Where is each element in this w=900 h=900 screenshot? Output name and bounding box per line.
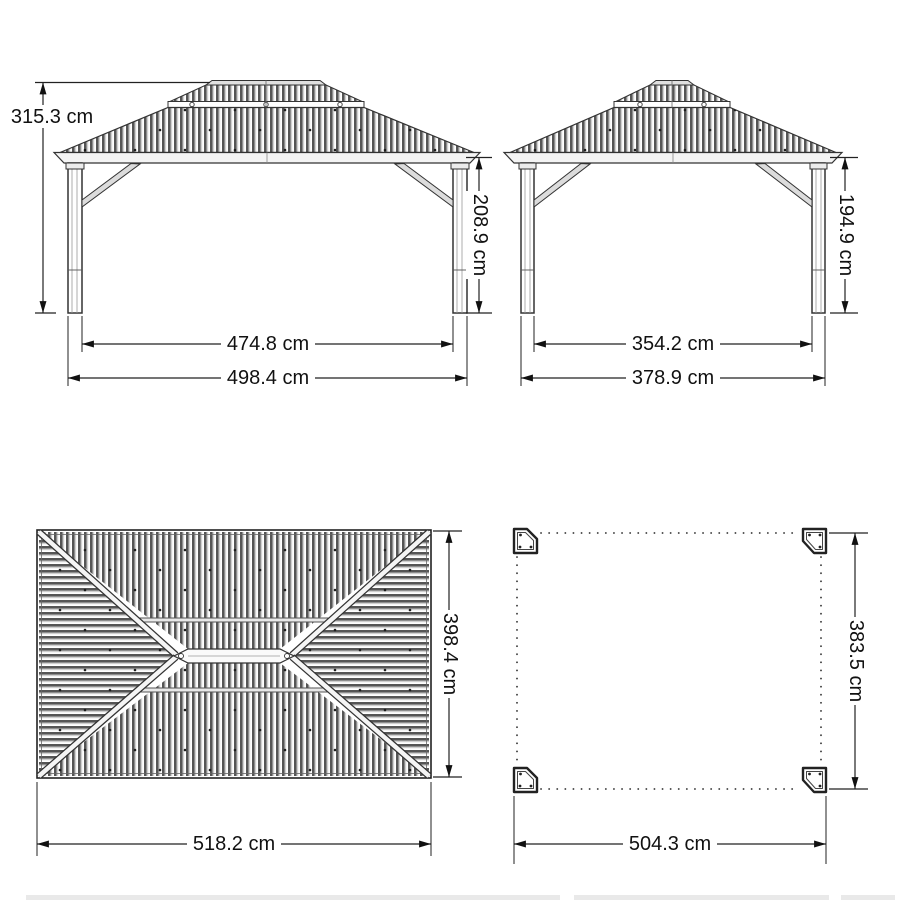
dim-label-side-inner-depth: 354.2 cm — [632, 333, 714, 355]
base-plan-view: 383.5 cm 504.3 cm — [514, 529, 868, 864]
dim-label-base-depth: 383.5 cm — [845, 620, 867, 702]
dim-base-depth: 383.5 cm — [829, 533, 868, 789]
ridge-end-cap — [285, 654, 290, 659]
dim-front-inner-width: 474.8 cm — [82, 316, 453, 355]
base-post-top-left — [514, 529, 537, 553]
side-left-post — [519, 163, 536, 313]
dim-label-front-outer-width: 498.4 cm — [227, 367, 309, 389]
dim-label-overall-height: 315.3 cm — [11, 106, 93, 128]
base-post-bottom-left — [514, 768, 537, 792]
dim-label-side-outer-depth: 378.9 cm — [632, 367, 714, 389]
vent-connector — [190, 102, 194, 106]
bottom-edge-strip — [26, 895, 895, 900]
vent-connector — [638, 102, 642, 106]
front-right-brace — [395, 164, 453, 208]
dim-label-side-clearance: 194.9 cm — [835, 194, 857, 276]
dim-side-inner-depth: 354.2 cm — [534, 316, 812, 355]
dim-base-width: 504.3 cm — [514, 796, 826, 864]
front-left-post — [66, 163, 84, 313]
side-left-brace — [534, 164, 590, 208]
dim-label-base-width: 504.3 cm — [629, 833, 711, 855]
dim-label-front-inner-width: 474.8 cm — [227, 333, 309, 355]
dim-roof-width: 518.2 cm — [37, 782, 431, 856]
dim-roof-depth: 398.4 cm — [433, 531, 462, 777]
roof-plan-view: 398.4 cm 518.2 cm — [37, 530, 462, 856]
base-post-top-right — [803, 529, 826, 553]
front-roof-rivets — [60, 108, 474, 153]
vent-connector — [338, 102, 342, 106]
dim-label-roof-width: 518.2 cm — [193, 833, 275, 855]
dim-side-clearance-height: 194.9 cm — [830, 158, 858, 314]
dim-label-front-clearance: 208.9 cm — [469, 194, 491, 276]
side-right-post — [810, 163, 827, 313]
base-footprint-dotted-outline — [517, 533, 821, 789]
vent-connector — [702, 102, 706, 106]
side-roof-rivets — [510, 108, 836, 153]
dim-label-roof-depth: 398.4 cm — [439, 613, 461, 695]
side-right-brace — [756, 164, 812, 208]
front-elevation-view: 315.3 cm 208.9 cm 474.8 cm 498.4 cm — [5, 81, 492, 390]
dim-front-clearance-height: 208.9 cm — [466, 158, 492, 314]
gazebo-dimension-drawing: 315.3 cm 208.9 cm 474.8 cm 498.4 cm — [0, 0, 900, 900]
side-elevation-view: 194.9 cm 354.2 cm 378.9 cm — [504, 81, 858, 390]
base-post-bottom-right — [803, 768, 826, 792]
front-left-brace — [82, 164, 140, 208]
ridge-end-cap — [179, 654, 184, 659]
